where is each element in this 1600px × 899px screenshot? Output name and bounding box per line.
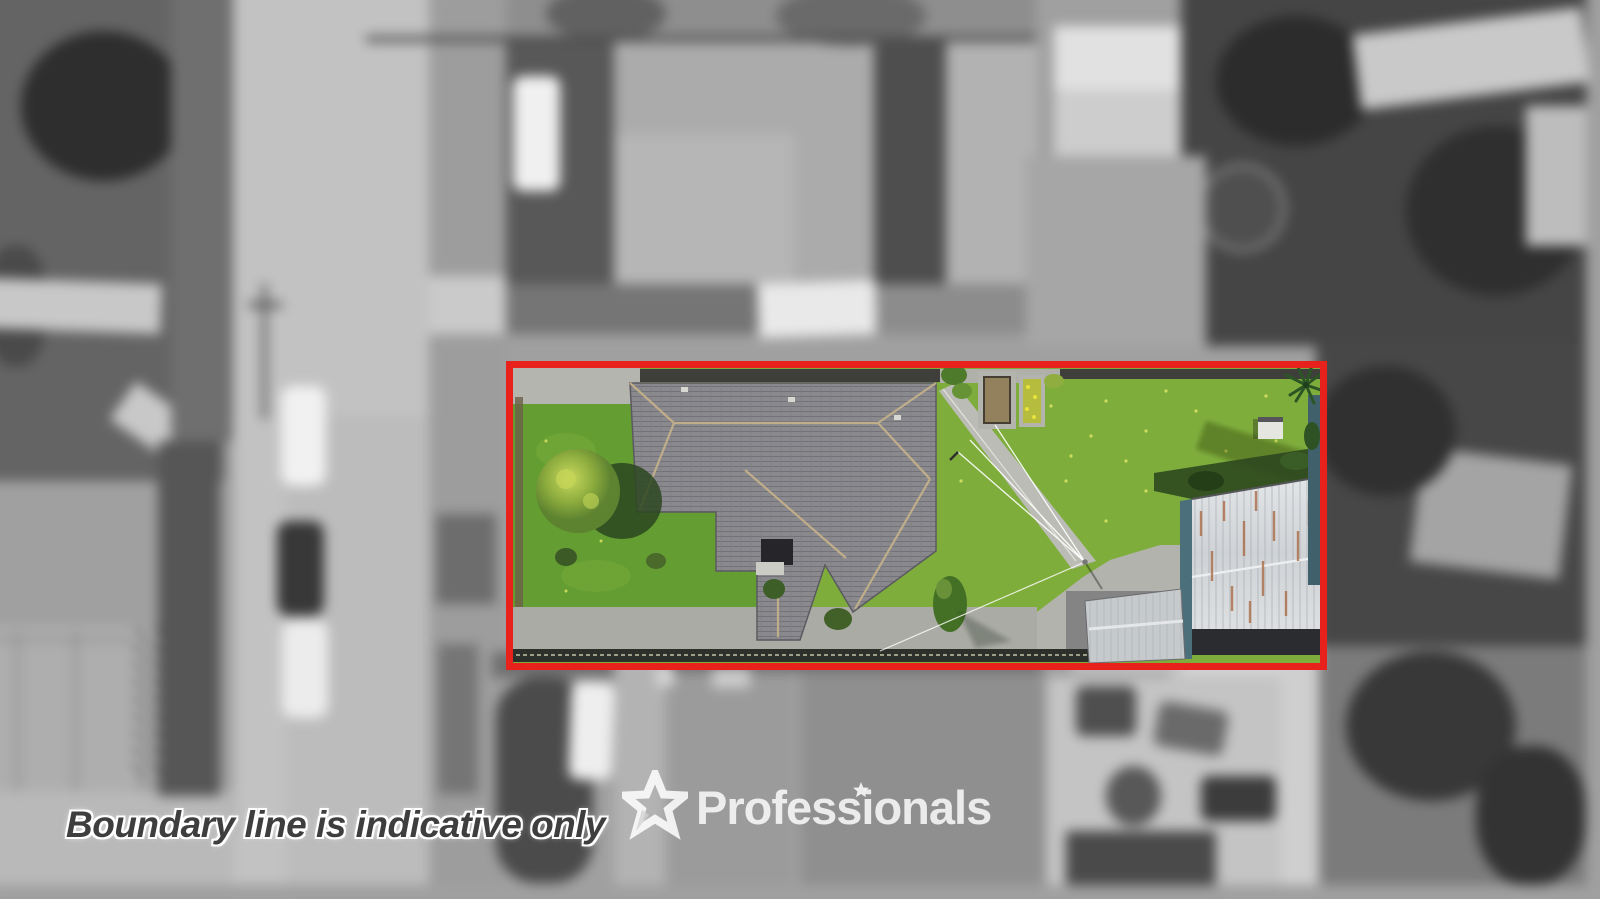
bg-clutter-blob [1076,686,1136,736]
shrub [1044,374,1064,388]
shrub [952,383,972,399]
roof-vent [681,387,688,392]
big-shed [1180,477,1320,659]
fence-shadow-top [640,369,940,382]
bg-panel-line [74,631,77,796]
bg-driveway-cut [429,276,507,334]
shrub [824,608,852,630]
bg-tree-left [21,31,186,181]
small-shed [1085,589,1185,663]
bg-parked-car-dark [277,521,324,616]
bg-verge-dark-patch [436,514,496,604]
bg-light-strip-vertical [1281,646,1319,885]
bg-hedge-band-right [876,284,1038,334]
bg-parked-car-white-1 [281,386,326,486]
bg-clutter-blob [1106,766,1161,826]
bg-clutter-band [1066,831,1216,885]
shrub [763,579,785,599]
garden-box [1253,417,1283,439]
small-shrub [646,553,666,569]
bg-parked-van-white [513,76,560,191]
chimney [756,562,784,575]
fence-shrub [1304,422,1320,450]
bg-chimney-2 [712,668,750,688]
bg-power-pole-crossarm [248,302,282,308]
boundary-disclaimer-text: Boundary line is indicative only [66,804,605,846]
bg-verge-strip [171,0,233,441]
bg-panel-line [16,631,19,796]
bg-concrete-yard-top [946,42,1038,290]
bush-highlight [556,469,576,489]
chimney-shadow [761,539,793,565]
small-shrub [555,548,577,566]
garden-bed-flowers [1019,375,1045,427]
lawn-patch [561,560,631,592]
hedge-blob [1280,452,1312,470]
fence-shadow-top-right [1060,369,1320,379]
property-scene [506,361,1327,670]
bg-hedge-band-left [506,284,761,334]
highlighted-property [506,361,1327,670]
bg-round-pool [1198,164,1286,252]
brand-watermark: Professionals [616,764,1016,854]
bg-dark-roof [874,40,948,284]
bg-parked-car-white-2 [282,620,328,718]
shed-shadow-band [1192,629,1320,655]
bg-panel-line [0,638,136,641]
brand-star-icon [622,770,688,842]
side-fence [515,397,523,609]
bg-parked-car-white-3 [568,681,614,780]
aerial-photo-stage: Boundary line is indicative only Profess… [0,0,1600,899]
bg-fence-top [366,36,1036,42]
bg-warehouse-roof-lower [614,134,794,292]
bg-light-patch-topright [1526,106,1586,246]
bg-hedge-vertical [158,441,220,796]
garden-bed-soil [978,371,1016,429]
brand-mini-star-icon [853,782,869,798]
bg-clutter-blob [1201,776,1276,821]
bg-tree-dark-3 [1316,366,1456,496]
palm-center [1303,382,1309,388]
shrub-highlight [936,579,952,599]
bg-footpath-horizontal [0,278,162,334]
bg-verge-dark-patch-2 [438,644,478,794]
brand-name-text: Professionals [696,780,991,835]
hedge-blob [1188,471,1224,491]
bg-striped-stairs [133,631,159,776]
bg-tree-bottom-right-2 [1476,746,1586,885]
concrete-top-left [513,368,640,404]
roof-vent [894,415,901,420]
bush-highlight [583,493,599,509]
front-bush [536,449,620,533]
bg-panels-bottom-left [0,626,136,796]
bg-chimney-1 [656,668,674,686]
bg-white-carport [757,280,877,338]
bg-concrete-mid-right [1026,156,1206,346]
bg-white-shed-roof-lower [1054,90,1188,158]
roof-vent [788,397,795,402]
